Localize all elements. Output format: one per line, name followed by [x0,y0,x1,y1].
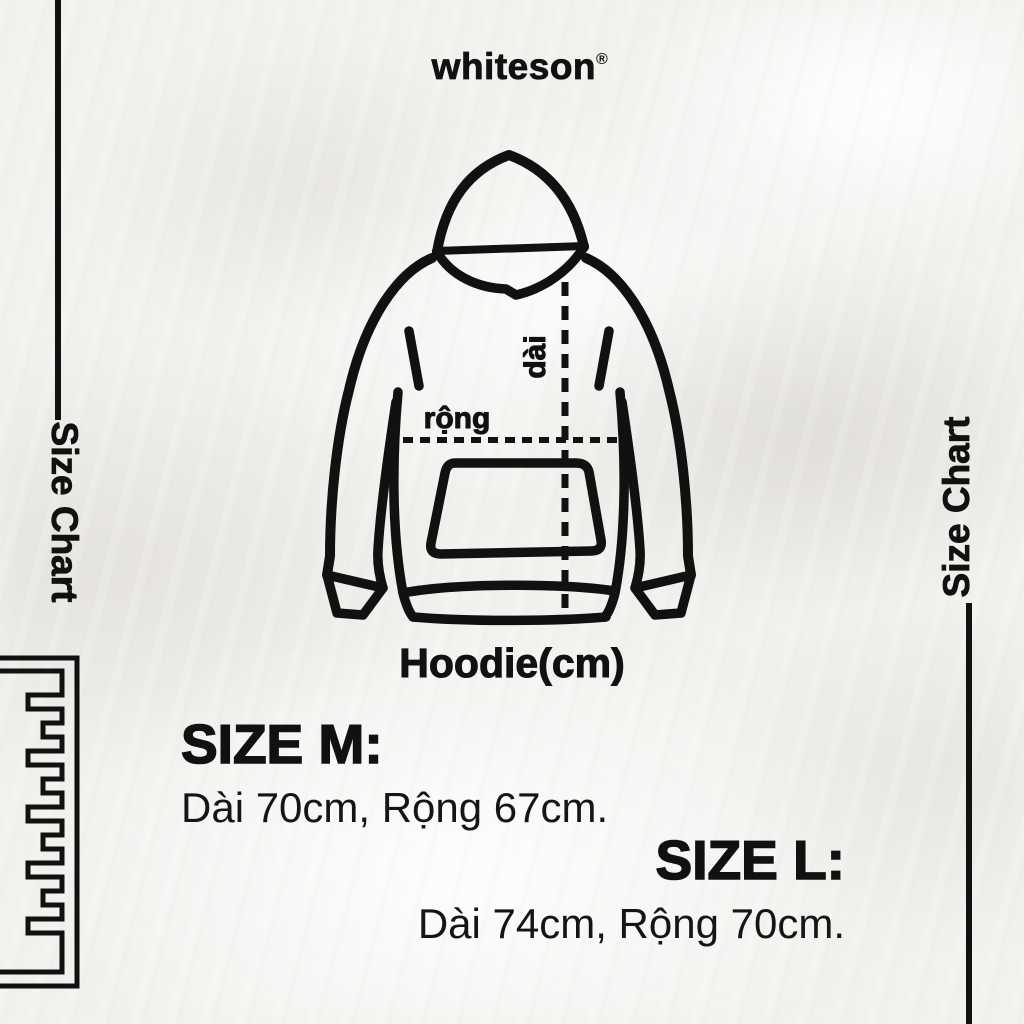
size-l-measurements: Dài 74cm, Rộng 70cm. [418,903,845,945]
size-m-block: SIZE M: Dài 70cm, Rộng 67cm. [181,717,608,829]
left-torso-edge [394,392,413,617]
size-l-block: SIZE L: Dài 74cm, Rộng 70cm. [418,833,845,945]
hem-upper-line [403,585,614,593]
size-m-title: SIZE M: [181,717,608,772]
size-chart-page: whiteson® Size Chart Size Chart rộng dà [0,0,1024,1024]
hood-brim-line [436,246,585,251]
diagram-caption: Hoodie(cm) [399,640,625,687]
left-raglan-seam [409,331,419,386]
length-label: dài [519,335,552,378]
hood-outline [437,155,584,252]
right-torso-edge [605,392,624,617]
pocket-outline [431,463,602,554]
left-cuff [327,575,383,615]
right-cuff [635,575,691,615]
ruler-comb-outline [0,671,62,972]
size-m-measurements: Dài 70cm, Rộng 67cm. [181,787,608,829]
size-l-title: SIZE L: [418,833,845,888]
hem-lower-line [413,617,606,620]
width-label: rộng [424,402,491,435]
right-raglan-seam [599,331,609,386]
